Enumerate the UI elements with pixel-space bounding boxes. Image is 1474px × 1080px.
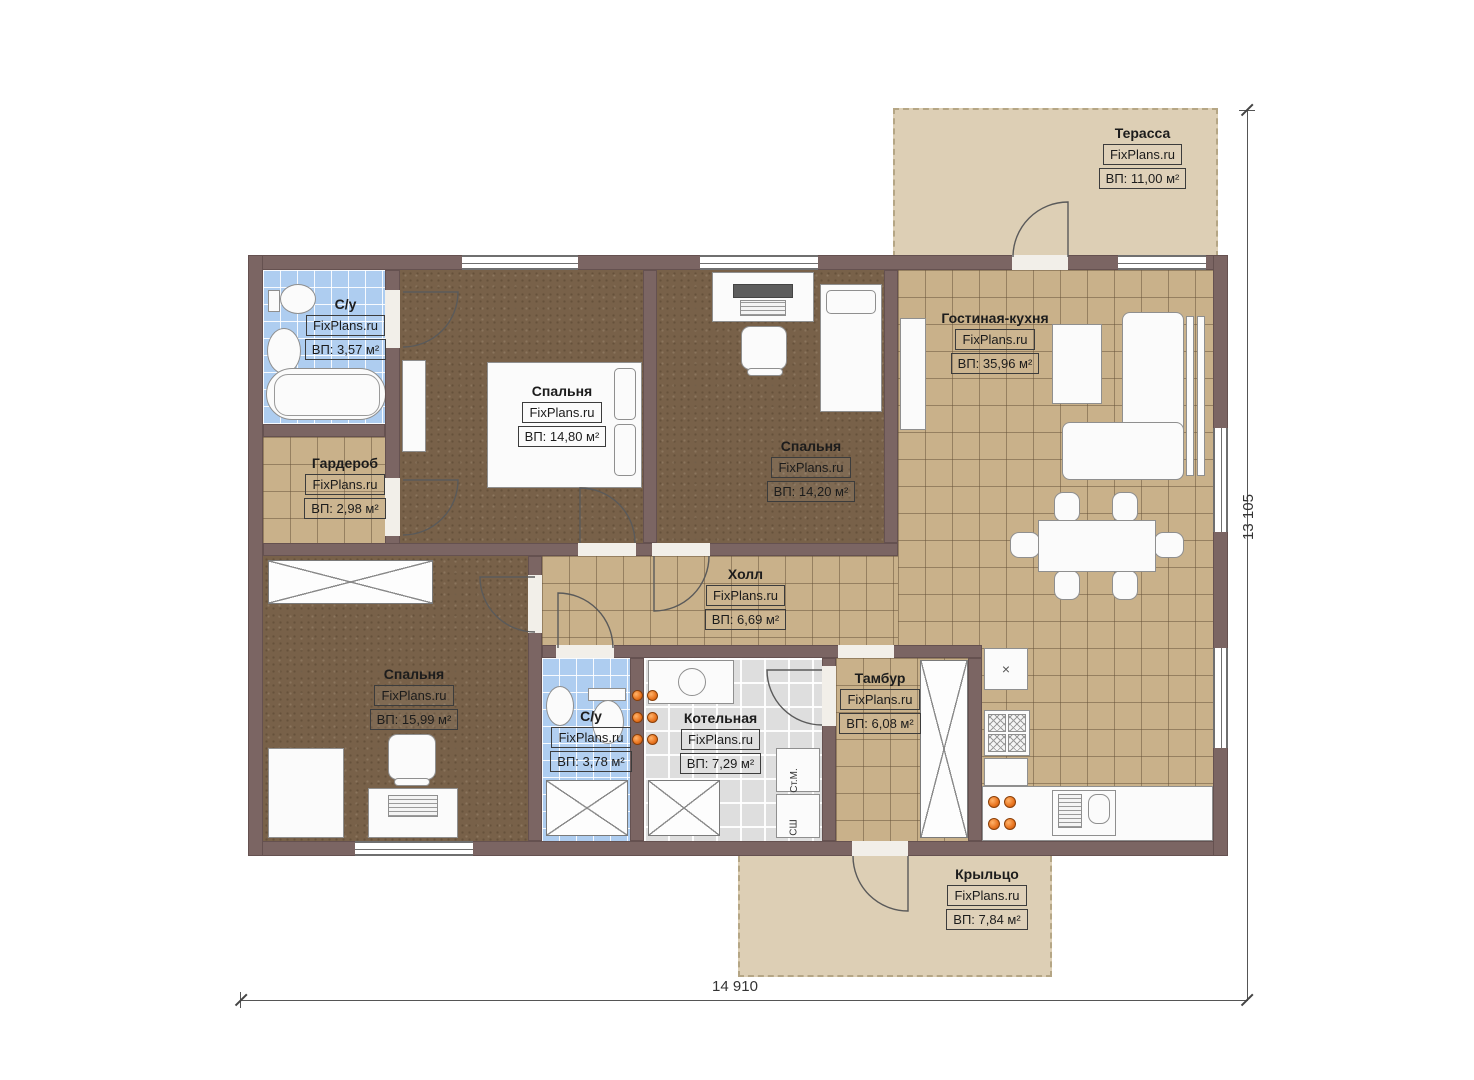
dining-chair [1054,492,1080,522]
toilet-tank [268,290,280,312]
counter [984,758,1028,786]
manifold-dot [647,690,658,701]
door-opening [652,543,710,556]
wardrobe-cabinet [268,748,344,838]
burner [1008,714,1026,732]
manifold-dot [647,712,658,723]
door-opening [556,645,614,658]
door-opening [838,645,894,658]
room-area: ВП: 7,84 м² [946,909,1027,930]
wall-interior [884,270,898,543]
room-label-wardrobe: Гардероб FixPlans.ru ВП: 2,98 м² [290,455,400,519]
dining-table [1038,520,1156,572]
room-area: ВП: 7,29 м² [680,753,761,774]
sofa-section [1062,422,1184,480]
dimension-line-horizontal [240,1000,1248,1001]
dining-chair [1112,570,1138,600]
room-name: Холл [728,566,763,582]
watermark: FixPlans.ru [305,474,384,495]
office-chair-back [747,368,783,376]
room-area: ВП: 6,08 м² [839,713,920,734]
wall-exterior-right [1213,255,1228,856]
room-name: Крыльцо [955,866,1019,882]
room-name: Спальня [384,666,444,682]
dining-chair [1112,492,1138,522]
shower-tray [648,780,720,836]
watermark: FixPlans.ru [306,315,385,336]
room-area: ВП: 35,96 м² [951,353,1040,374]
room-label-living: Гостиная-кухня FixPlans.ru ВП: 35,96 м² [930,310,1060,374]
room-area: ВП: 2,98 м² [304,498,385,519]
burner [988,734,1006,752]
room-name: Спальня [781,438,841,454]
room-label-bedroom3: Спальня FixPlans.ru ВП: 15,99 м² [355,666,473,730]
room-area: ВП: 14,20 м² [767,481,856,502]
office-chair-back [394,778,430,786]
door-opening [528,575,542,633]
boiler-sink [678,668,706,696]
sink-basin [1088,794,1110,824]
room-label-boiler: Котельная FixPlans.ru ВП: 7,29 м² [658,710,783,774]
floor-plan: Ст.М. СШ × [0,0,1474,1080]
room-area: ВП: 3,57 м² [305,339,386,360]
dining-chair [1154,532,1184,558]
watermark: FixPlans.ru [551,727,630,748]
office-chair [741,326,787,370]
room-label-vestibule: Тамбур FixPlans.ru ВП: 6,08 м² [820,670,940,734]
room-name: Спальня [532,383,592,399]
entrance-opening [852,841,908,856]
room-label-bath2: С/у FixPlans.ru ВП: 3,78 м² [540,708,642,772]
burner [988,714,1006,732]
wall-exterior-left [248,255,263,856]
wall-interior [263,424,385,437]
burner [1008,734,1026,752]
room-name: Гардероб [312,455,378,471]
fridge-cross-icon: × [1002,661,1010,677]
room-name: Терасса [1115,125,1171,141]
watermark: FixPlans.ru [771,457,850,478]
manifold-dot [647,734,658,745]
dish-rack [1058,794,1082,828]
wall-interior [968,658,982,841]
watermark: FixPlans.ru [840,689,919,710]
printer [388,795,438,817]
window [355,841,473,856]
room-area: ВП: 6,69 м² [705,609,786,630]
window [1118,255,1206,270]
manifold-dot [632,690,643,701]
gas-burner-dot [1004,796,1016,808]
room-area: ВП: 14,80 м² [518,426,607,447]
cabinet [402,360,426,452]
bathtub-inner [274,374,380,416]
room-name: Гостиная-кухня [941,310,1048,326]
dimension-width: 14 910 [660,978,810,995]
closet [268,560,433,604]
fridge: × [984,648,1028,690]
room-name: Тамбур [855,670,906,686]
window [1213,428,1228,532]
watermark: FixPlans.ru [522,402,601,423]
sofa-back [1197,316,1205,476]
room-area: ВП: 11,00 м² [1099,168,1187,189]
wall-interior [643,270,657,543]
gas-burner-dot [988,796,1000,808]
room-name: С/у [335,296,357,312]
watermark: FixPlans.ru [947,885,1026,906]
terrace-door-opening [1012,255,1068,270]
room-label-hall: Холл FixPlans.ru ВП: 6,69 м² [688,566,803,630]
dining-chair [1010,532,1040,558]
room-name: С/у [580,708,602,724]
watermark: FixPlans.ru [706,585,785,606]
door-opening [578,543,636,556]
watermark: FixPlans.ru [374,685,453,706]
room-area: ВП: 3,78 м² [550,751,631,772]
window [1213,648,1228,748]
tv-cabinet [900,318,926,430]
room-label-porch: Крыльцо FixPlans.ru ВП: 7,84 м² [928,866,1046,930]
room-label-bath1: С/у FixPlans.ru ВП: 3,57 м² [293,296,398,360]
room-name: Котельная [684,710,757,726]
room-label-terrace: Терасса FixPlans.ru ВП: 11,00 м² [1085,125,1200,189]
watermark: FixPlans.ru [681,729,760,750]
window [462,255,578,270]
keyboard [740,300,786,316]
window [700,255,818,270]
washer-label: Ст.М. [789,768,800,793]
sofa-back [1186,316,1194,476]
dimension-height: 13 105 [1240,472,1257,562]
gas-burner-dot [1004,818,1016,830]
gas-burner-dot [988,818,1000,830]
dryer-label: СШ [789,819,800,835]
room-area: ВП: 15,99 м² [370,709,459,730]
watermark: FixPlans.ru [1103,144,1182,165]
office-chair [388,734,436,780]
room-label-bedroom2: Спальня FixPlans.ru ВП: 14,20 м² [752,438,870,502]
pillow [826,290,876,314]
shower-tray [546,780,628,836]
room-label-bedroom1: Спальня FixPlans.ru ВП: 14,80 м² [503,383,621,447]
watermark: FixPlans.ru [955,329,1034,350]
monitor [733,284,793,298]
dining-chair [1054,570,1080,600]
